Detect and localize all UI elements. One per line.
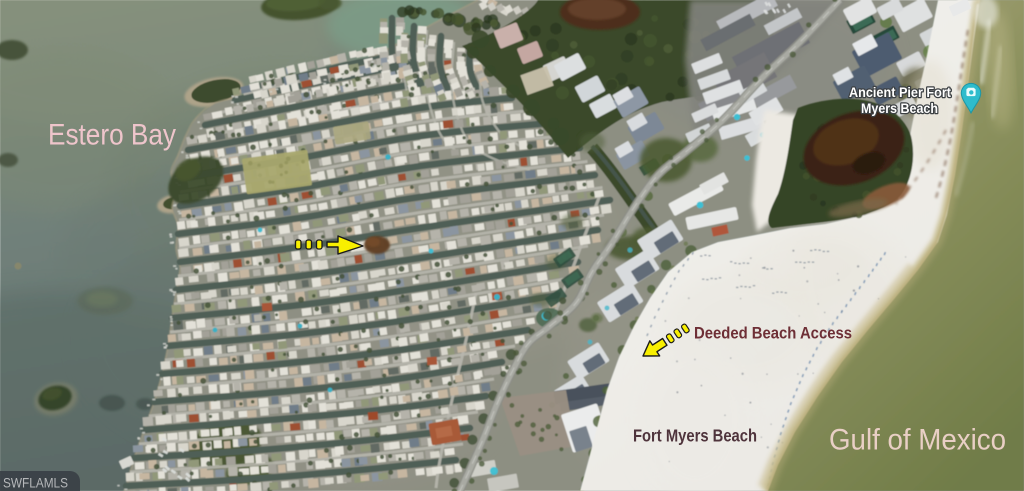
svg-text:Fort Myers Beach: Fort Myers Beach — [633, 426, 757, 446]
svg-text:SWFLAMLS: SWFLAMLS — [3, 476, 68, 491]
svg-text:Deeded Beach Access: Deeded Beach Access — [694, 325, 852, 343]
svg-text:Myers Beach: Myers Beach — [861, 101, 938, 116]
svg-text:Gulf of Mexico: Gulf of Mexico — [829, 424, 1006, 457]
svg-text:Ancient Pier Fort: Ancient Pier Fort — [849, 85, 951, 100]
svg-text:Estero Bay: Estero Bay — [48, 119, 176, 152]
